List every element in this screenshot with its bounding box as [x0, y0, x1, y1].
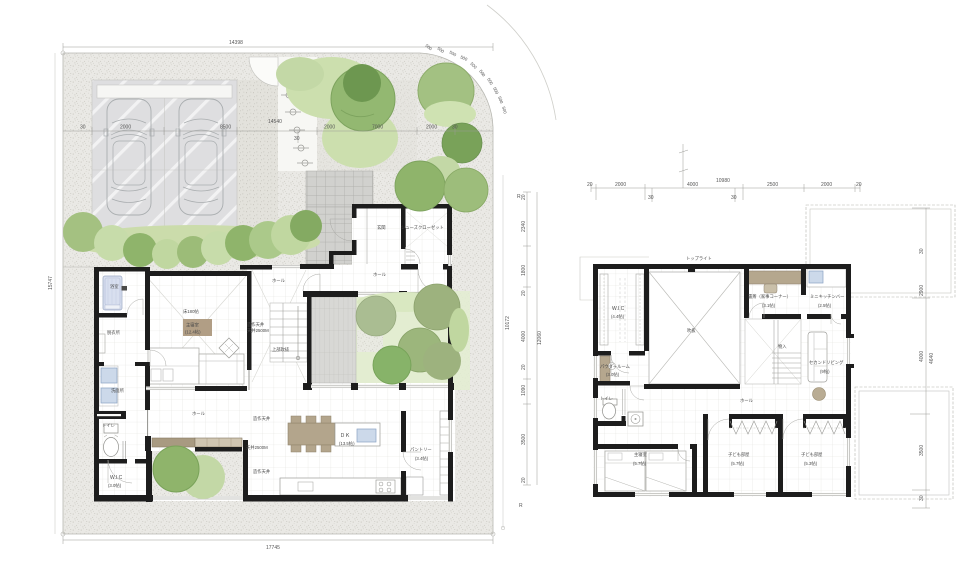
svg-text:R: R	[519, 503, 523, 509]
svg-text:30: 30	[648, 195, 654, 201]
svg-text:ミニキッチンバー: ミニキッチンバー	[810, 294, 844, 299]
svg-text:30: 30	[452, 125, 458, 131]
svg-text:30: 30	[919, 248, 925, 254]
svg-text:造作天井: 造作天井	[247, 321, 265, 328]
svg-text:セカンドリビング: セカンドリビング	[809, 359, 844, 366]
svg-text:子ども部屋: 子ども部屋	[801, 451, 823, 458]
svg-text:17745: 17745	[266, 545, 280, 551]
svg-text:14398: 14398	[229, 40, 243, 46]
svg-text:トイレ: トイレ	[600, 396, 613, 401]
svg-text:主寝室: 主寝室	[634, 451, 648, 457]
svg-text:4000: 4000	[521, 331, 527, 342]
svg-text:吹抜: 吹抜	[687, 327, 696, 334]
svg-text:20: 20	[521, 477, 527, 483]
svg-text:W.I.C: W.I.C	[612, 306, 625, 312]
svg-text:20: 20	[521, 290, 527, 296]
svg-text:2000: 2000	[120, 125, 131, 131]
svg-text:浴室: 浴室	[110, 283, 119, 290]
svg-text:14540: 14540	[268, 119, 282, 125]
svg-text:7000: 7000	[372, 125, 383, 131]
svg-text:20: 20	[521, 364, 527, 370]
svg-text:10172: 10172	[505, 316, 511, 330]
svg-text:20: 20	[587, 182, 593, 188]
svg-text:上部吹抜: 上部吹抜	[272, 346, 290, 353]
svg-text:2000: 2000	[324, 125, 335, 131]
svg-text:8500: 8500	[220, 125, 231, 131]
svg-text:10980: 10980	[716, 178, 730, 184]
svg-text:パウダールーム: パウダールーム	[600, 363, 631, 370]
svg-text:ＤＫ: ＤＫ	[340, 433, 350, 439]
svg-text:1090: 1090	[521, 385, 527, 396]
svg-text:洗面所: 洗面所	[111, 387, 125, 394]
svg-text:玄関: 玄関	[377, 224, 386, 231]
svg-text:天井2500M: 天井2500M	[246, 444, 268, 451]
svg-text:4640: 4640	[929, 353, 935, 364]
svg-text:物入: 物入	[778, 343, 787, 350]
svg-text:書斎（家事コーナー）: 書斎（家事コーナー）	[748, 293, 791, 300]
svg-text:20: 20	[521, 194, 527, 200]
svg-text:15747: 15747	[48, 276, 54, 290]
svg-text:(3.0帖): (3.0帖)	[108, 482, 122, 489]
svg-text:主寝室: 主寝室	[186, 322, 200, 328]
svg-text:(5.3帖): (5.3帖)	[804, 460, 818, 467]
svg-text:(3.4帖): (3.4帖)	[415, 455, 429, 462]
svg-text:(5.7帖): (5.7帖)	[731, 460, 745, 467]
svg-text:(4.4帖): (4.4帖)	[611, 313, 625, 320]
svg-text:ホール: ホール	[192, 411, 206, 416]
svg-text:(5.7帖): (5.7帖)	[633, 460, 647, 467]
svg-text:2000: 2000	[615, 182, 626, 188]
svg-text:(3.1帖): (3.1帖)	[762, 302, 776, 309]
svg-text:脱衣所: 脱衣所	[107, 329, 121, 336]
svg-text:1800: 1800	[521, 265, 527, 276]
svg-text:2500: 2500	[767, 182, 778, 188]
svg-text:パントリー: パントリー	[410, 447, 432, 452]
svg-text:天井2500M: 天井2500M	[247, 327, 269, 334]
svg-text:造作天井: 造作天井	[253, 415, 271, 422]
svg-text:30: 30	[294, 136, 300, 142]
svg-text:トイレ: トイレ	[102, 423, 115, 428]
svg-text:(9帖): (9帖)	[820, 368, 830, 375]
svg-text:2900: 2900	[919, 285, 925, 296]
svg-text:30: 30	[731, 195, 737, 201]
svg-text:ホール: ホール	[272, 278, 286, 283]
svg-text:20: 20	[856, 182, 862, 188]
svg-text:2340: 2340	[521, 221, 527, 232]
svg-text:3500: 3500	[521, 434, 527, 445]
svg-text:12060: 12060	[537, 331, 543, 345]
svg-text:(3.0帖): (3.0帖)	[606, 371, 620, 378]
svg-text:ホール: ホール	[373, 272, 387, 277]
svg-text:2000: 2000	[426, 125, 437, 131]
svg-text:ホール: ホール	[740, 398, 754, 403]
svg-text:シューズクローゼット: シューズクローゼット	[401, 224, 444, 231]
svg-text:3500: 3500	[919, 445, 925, 456]
svg-text:(2.5帖): (2.5帖)	[818, 302, 832, 309]
svg-text:4000: 4000	[687, 182, 698, 188]
svg-text:子ども部屋: 子ども部屋	[728, 451, 750, 458]
svg-text:(12.4帖): (12.4帖)	[185, 329, 201, 336]
svg-text:床180帖: 床180帖	[183, 308, 199, 315]
svg-text:30: 30	[919, 495, 925, 501]
svg-text:(13.5帖): (13.5帖)	[339, 440, 355, 447]
svg-text:4000: 4000	[919, 351, 925, 362]
svg-text:2000: 2000	[821, 182, 832, 188]
svg-text:30: 30	[80, 125, 86, 131]
svg-text:造作天井: 造作天井	[253, 468, 271, 475]
svg-text:W.I.C: W.I.C	[110, 475, 123, 481]
